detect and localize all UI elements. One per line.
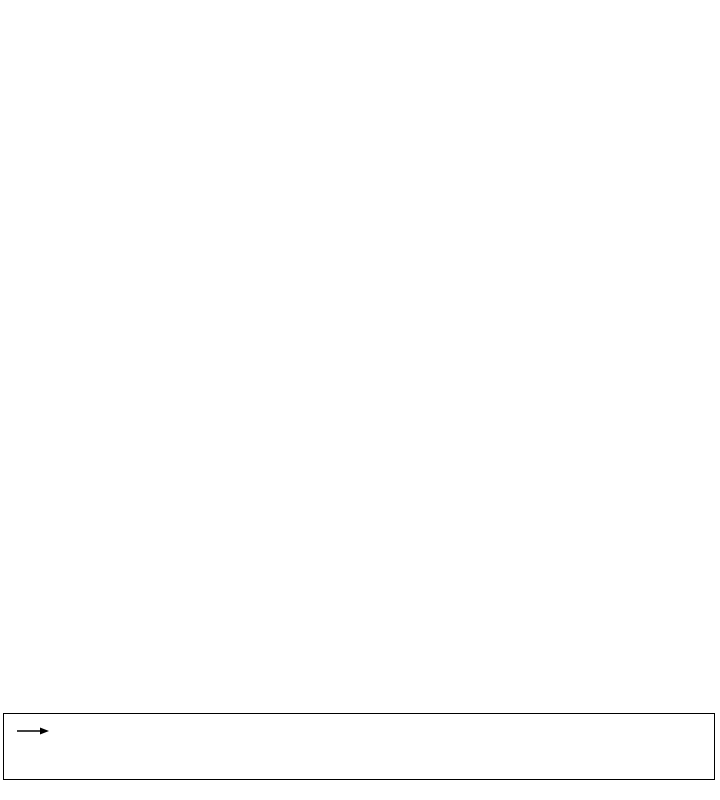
reference-arrow-icon (16, 726, 50, 736)
quiver-plot (0, 0, 720, 712)
velocity-forecast-page (0, 0, 720, 800)
velocity-map-figure (0, 0, 720, 712)
caption-box (3, 713, 715, 780)
